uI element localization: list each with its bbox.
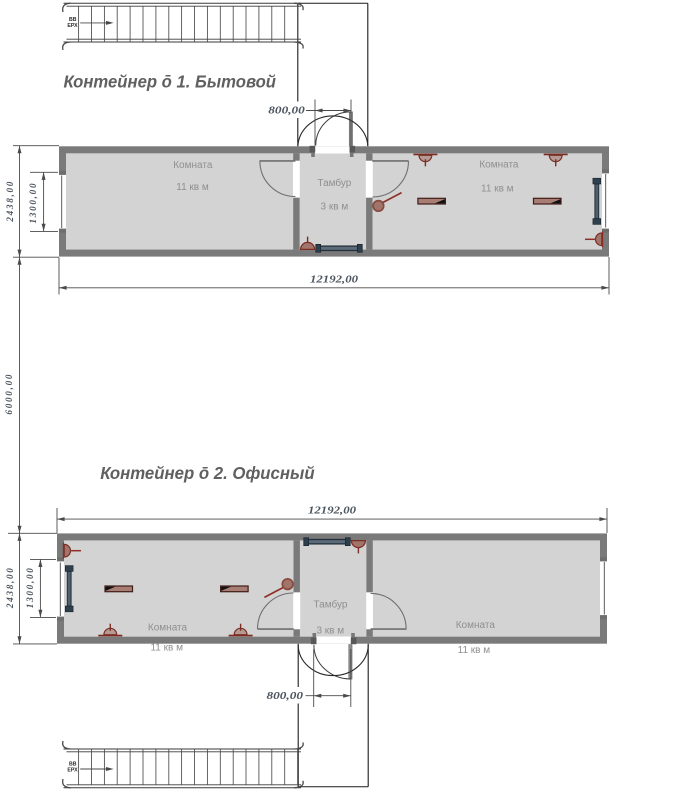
svg-text:Контейнер о̄ 1. Бытовой: Контейнер о̄ 1. Бытовой xyxy=(64,71,277,91)
svg-text:Контейнер о̄ 2. Офисный: Контейнер о̄ 2. Офисный xyxy=(100,463,315,483)
svg-text:ЕРХ: ЕРХ xyxy=(67,23,78,29)
svg-text:Тамбур: Тамбур xyxy=(317,177,351,189)
svg-text:11 кв м: 11 кв м xyxy=(481,184,514,195)
svg-text:Комната: Комната xyxy=(173,160,213,171)
svg-text:6000,00: 6000,00 xyxy=(4,373,14,415)
svg-text:1300,00: 1300,00 xyxy=(25,566,35,608)
svg-text:800,00: 800,00 xyxy=(267,690,304,702)
svg-text:Комната: Комната xyxy=(479,160,519,171)
svg-text:ЕРХ: ЕРХ xyxy=(67,767,78,773)
svg-text:12192,00: 12192,00 xyxy=(310,274,359,286)
svg-text:2438,00: 2438,00 xyxy=(5,180,15,223)
svg-text:11 кв м: 11 кв м xyxy=(458,645,491,656)
svg-text:1300,00: 1300,00 xyxy=(28,182,38,224)
svg-text:11 кв м: 11 кв м xyxy=(176,182,209,193)
svg-text:Комната: Комната xyxy=(148,623,188,634)
svg-text:3 кв м: 3 кв м xyxy=(316,625,344,636)
svg-text:Тамбур: Тамбур xyxy=(314,598,348,610)
svg-text:3 кв м: 3 кв м xyxy=(321,201,349,212)
svg-text:11 кв м: 11 кв м xyxy=(150,643,183,654)
svg-text:2438,00: 2438,00 xyxy=(5,566,15,609)
svg-text:12192,00: 12192,00 xyxy=(308,504,357,516)
svg-text:800,00: 800,00 xyxy=(268,105,305,117)
svg-text:Комната: Комната xyxy=(456,620,496,631)
